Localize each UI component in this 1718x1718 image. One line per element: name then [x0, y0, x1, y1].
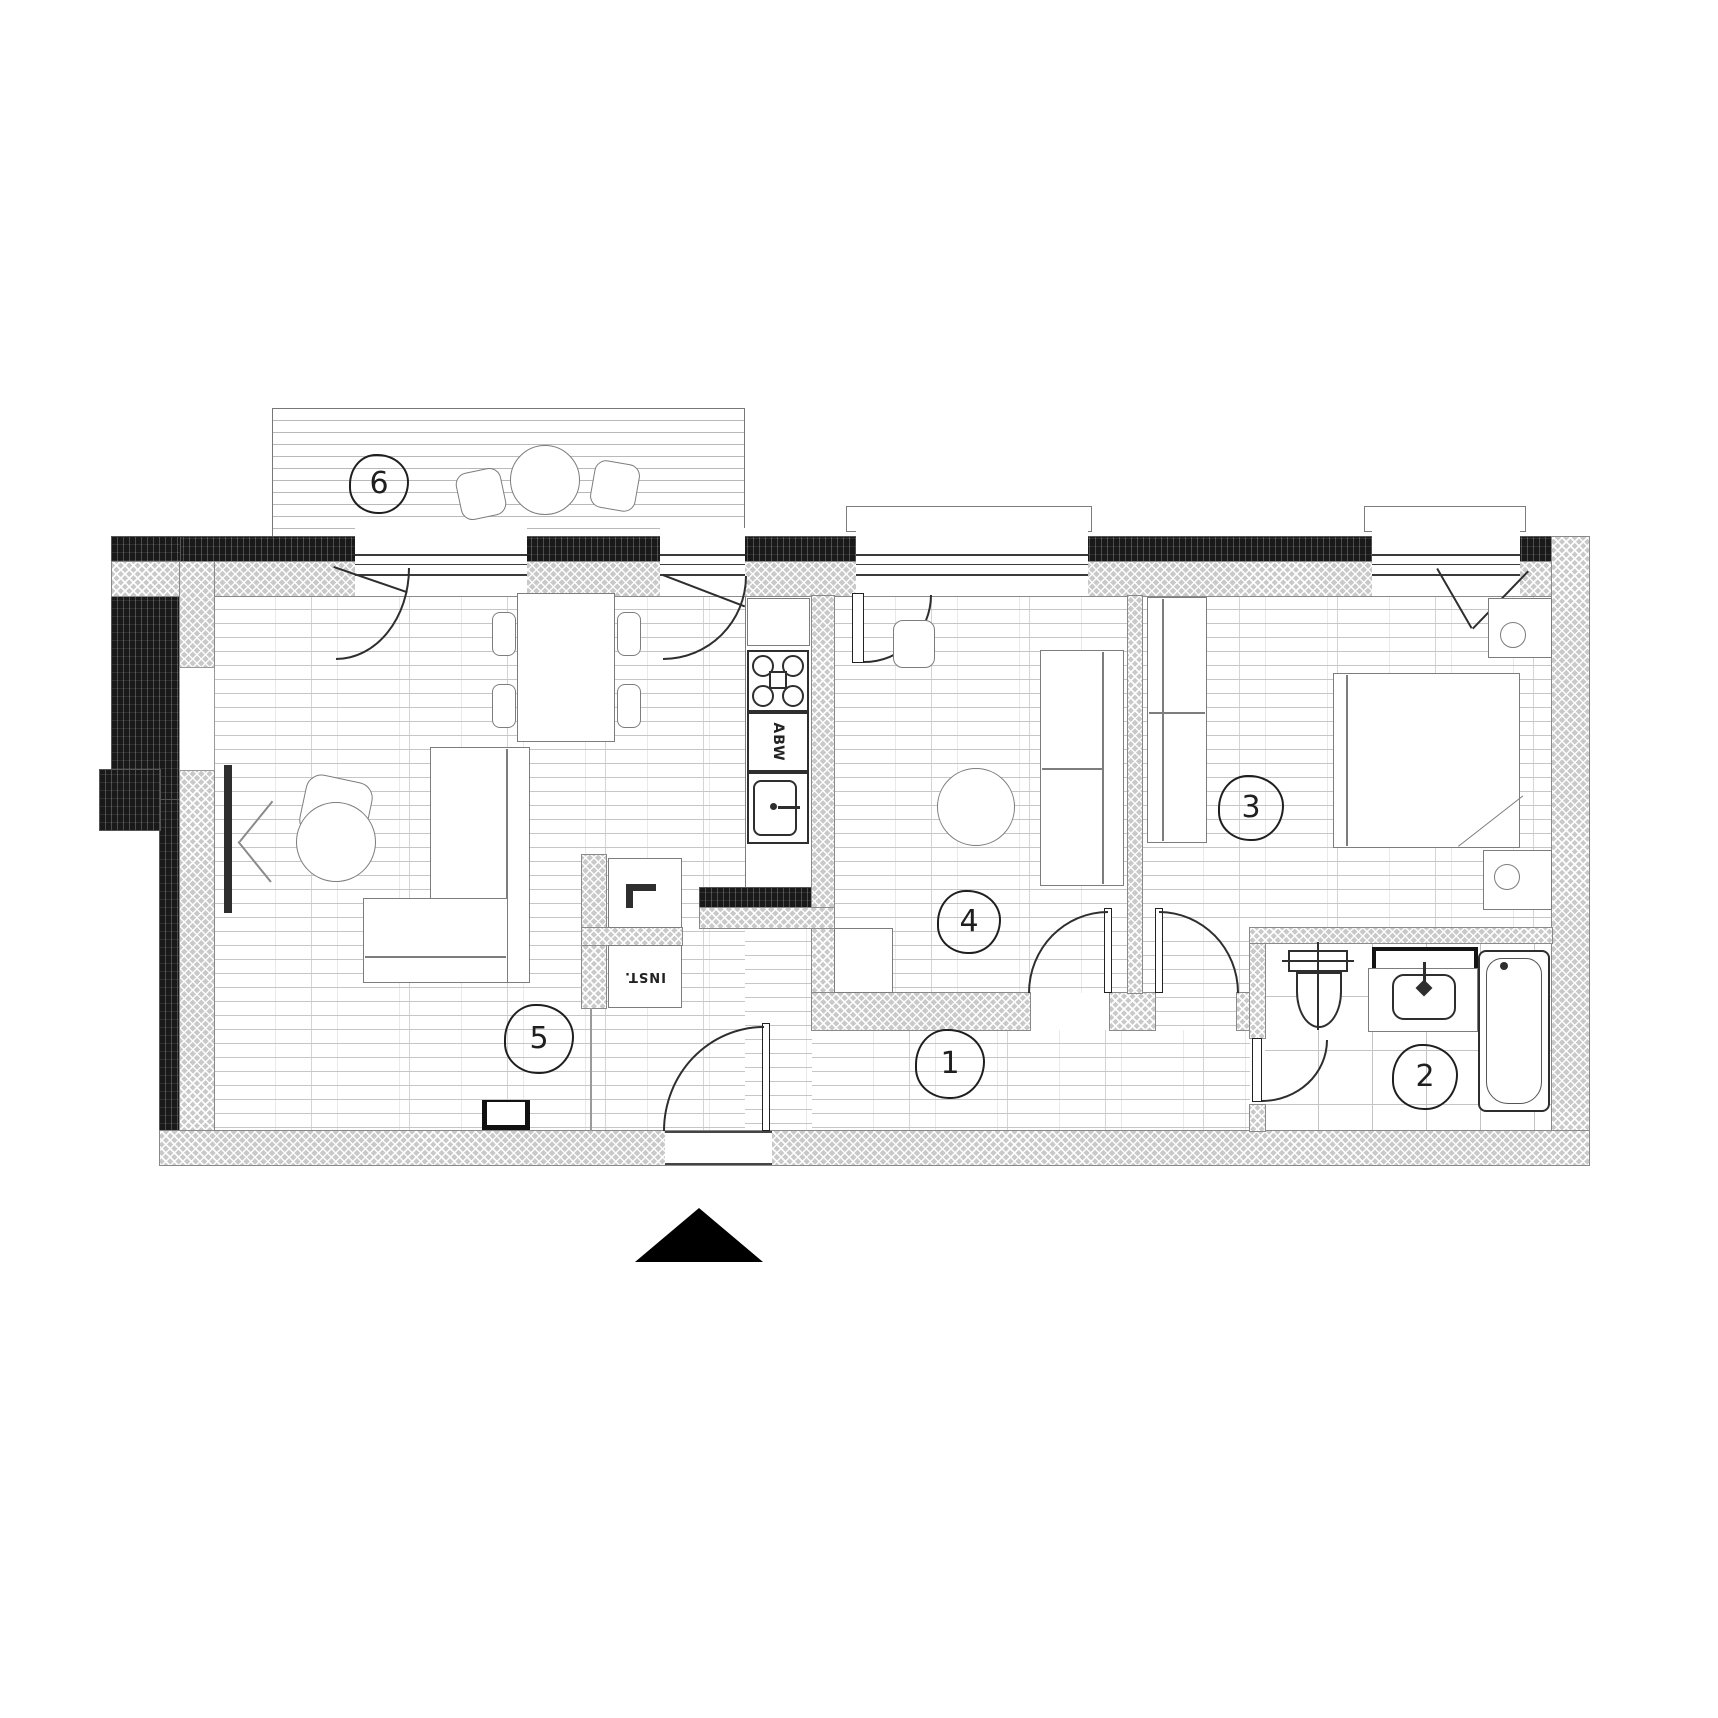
- bathroom-north-wall: [1250, 928, 1552, 943]
- room-number: 6: [369, 469, 388, 499]
- north-arrow-icon: [635, 1208, 763, 1262]
- nightstand-lamp: [1494, 864, 1520, 890]
- installation-shaft: INST.: [608, 945, 682, 1008]
- bathroom-door-leaf: [1252, 1038, 1262, 1102]
- balcony-deck: [272, 408, 745, 540]
- room-number: 2: [1415, 1062, 1434, 1092]
- toilet-axis-h: [1282, 960, 1354, 962]
- room-badge-bedroom: 3: [1218, 775, 1284, 841]
- hallway-north-wall-b: [1110, 993, 1155, 1030]
- floor-plan-canvas: ABW INST. 1 2 3: [0, 0, 1718, 1718]
- bathtub-inner: [1486, 958, 1542, 1104]
- room4-daybed-cushion-line: [1042, 768, 1102, 770]
- bathroom-west-wall-a: [1250, 943, 1265, 1038]
- installation-shaft-label: INST.: [609, 946, 681, 1007]
- room-badge-room4: 4: [937, 890, 1001, 954]
- sink-faucet-line: [778, 806, 800, 809]
- kitchen-east-wall: [812, 596, 834, 993]
- dining-chair: [617, 612, 641, 656]
- left-wall-insulation-lower: [160, 800, 180, 1131]
- coat-closet: [608, 858, 682, 928]
- sofa-seat-line: [365, 956, 506, 958]
- double-bed: [1333, 673, 1520, 848]
- bed-mattress-line: [1346, 675, 1348, 846]
- room4-round-table: [937, 768, 1015, 846]
- room-badge-bathroom: 2: [1392, 1044, 1458, 1110]
- left-wall: [180, 562, 214, 1131]
- room-divider-wall: [1128, 596, 1142, 993]
- room-badge-balcony: 6: [349, 454, 409, 514]
- balcony-chair: [454, 466, 509, 523]
- entrance-opening: [665, 1131, 772, 1165]
- floor-outlet-box: [482, 1100, 530, 1130]
- balcony-chair: [588, 458, 642, 513]
- balcony-door-frame: [660, 554, 745, 576]
- kitchen-cabinet: [747, 598, 810, 646]
- right-wall: [1552, 537, 1589, 1165]
- left-wall-niche: [180, 668, 214, 770]
- dishwasher-label: ABW: [750, 713, 806, 771]
- room-number: 5: [529, 1024, 548, 1054]
- tv-panel: [224, 765, 232, 913]
- room3-window-frame: [1372, 554, 1520, 576]
- hallway-north-wall-a: [812, 993, 1030, 1030]
- dishwasher-unit: ABW: [747, 712, 809, 772]
- room-badge-hallway: 1: [915, 1029, 985, 1099]
- stove-center-knob: [769, 671, 787, 689]
- wardrobe: [1147, 597, 1207, 843]
- room4-window-panel: [852, 593, 864, 663]
- left-wall-notch: [100, 770, 160, 830]
- room4-window-frame: [856, 554, 1088, 576]
- room-number: 1: [940, 1049, 959, 1079]
- wardrobe-inner-line-h: [1149, 712, 1205, 714]
- armchair-seat: [296, 802, 376, 882]
- room-badge-living: 5: [504, 1004, 574, 1074]
- room4-daybed-back-line: [1102, 652, 1104, 884]
- room-number: 3: [1241, 793, 1260, 823]
- sink-faucet-dot: [770, 803, 777, 810]
- room4-niche: [834, 928, 893, 993]
- bathtub-drain: [1500, 962, 1508, 970]
- bathroom-west-wall-b: [1250, 1105, 1265, 1131]
- sofa-corner-section: [363, 898, 508, 983]
- room-number: 4: [959, 907, 978, 937]
- dining-chair: [492, 612, 516, 656]
- wardrobe-inner-line-v: [1162, 599, 1164, 841]
- nightstand-lamp: [1500, 622, 1526, 648]
- dining-chair: [617, 684, 641, 728]
- balcony-table: [510, 445, 580, 515]
- kitchen-bottom-wall: [700, 908, 834, 928]
- closet-mid-wall: [582, 928, 682, 945]
- dining-chair: [492, 684, 516, 728]
- dining-table: [517, 593, 615, 742]
- toilet-axis-v: [1317, 942, 1319, 1030]
- bottom-wall: [160, 1131, 1589, 1165]
- hall-living-boundary-line: [590, 1008, 592, 1131]
- hallway-floor: [812, 1030, 1250, 1131]
- room4-window: [856, 528, 1088, 596]
- coat-hook-symbol-v: [626, 884, 633, 908]
- top-wall-insulation: [112, 537, 1589, 562]
- room4-armchair: [893, 620, 935, 668]
